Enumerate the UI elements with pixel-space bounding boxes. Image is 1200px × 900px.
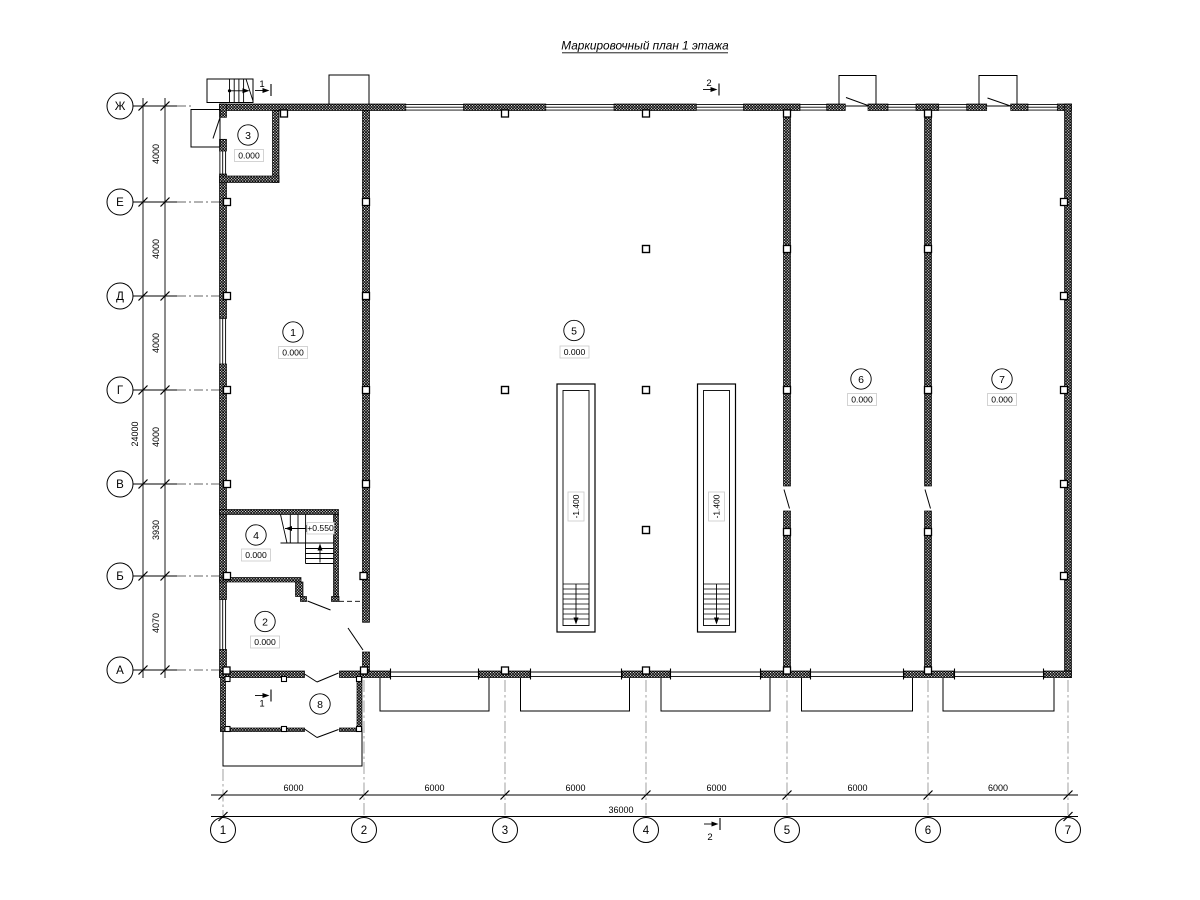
svg-text:4: 4	[253, 530, 259, 542]
svg-text:Е: Е	[116, 197, 124, 209]
svg-text:4000: 4000	[151, 144, 161, 164]
svg-text:6: 6	[858, 374, 864, 386]
svg-text:1: 1	[290, 327, 296, 339]
svg-text:6000: 6000	[988, 783, 1008, 793]
svg-text:4070: 4070	[151, 613, 161, 633]
svg-text:6000: 6000	[424, 783, 444, 793]
svg-text:3: 3	[245, 130, 251, 142]
svg-text:8: 8	[317, 699, 323, 711]
svg-text:6000: 6000	[847, 783, 867, 793]
svg-text:6: 6	[925, 825, 931, 837]
svg-text:Маркировочный план 1 этажа: Маркировочный план 1 этажа	[561, 39, 729, 53]
svg-text:Б: Б	[116, 571, 124, 583]
svg-text:2: 2	[361, 825, 367, 837]
svg-text:0.000: 0.000	[245, 550, 267, 560]
svg-text:36000: 36000	[608, 805, 633, 815]
svg-text:1: 1	[220, 825, 226, 837]
svg-text:4: 4	[643, 825, 650, 837]
svg-text:0.000: 0.000	[991, 395, 1013, 405]
svg-text:А: А	[116, 665, 124, 677]
svg-text:4000: 4000	[151, 333, 161, 353]
svg-text:1: 1	[259, 79, 264, 90]
svg-text:0.000: 0.000	[238, 151, 260, 161]
svg-text:7: 7	[1065, 825, 1071, 837]
svg-text:+0.550: +0.550	[307, 523, 334, 533]
svg-text:Ж: Ж	[115, 101, 126, 113]
svg-text:Д: Д	[116, 291, 124, 303]
svg-text:4000: 4000	[151, 427, 161, 447]
svg-text:6000: 6000	[565, 783, 585, 793]
svg-text:7: 7	[999, 374, 1005, 386]
svg-text:5: 5	[571, 325, 577, 337]
svg-text:Г: Г	[117, 385, 124, 397]
svg-text:-1.400: -1.400	[712, 494, 722, 518]
svg-text:24000: 24000	[130, 421, 140, 446]
svg-text:В: В	[116, 479, 124, 491]
svg-text:2: 2	[262, 616, 268, 628]
svg-text:0.000: 0.000	[282, 348, 304, 358]
svg-text:0.000: 0.000	[254, 637, 276, 647]
svg-text:2: 2	[707, 832, 712, 843]
svg-text:1: 1	[259, 699, 264, 710]
svg-text:3: 3	[502, 825, 508, 837]
svg-text:0.000: 0.000	[564, 347, 586, 357]
svg-text:4000: 4000	[151, 239, 161, 259]
svg-text:6000: 6000	[283, 783, 303, 793]
svg-text:6000: 6000	[706, 783, 726, 793]
svg-text:3930: 3930	[151, 520, 161, 540]
svg-text:5: 5	[784, 825, 790, 837]
svg-text:-1.400: -1.400	[571, 494, 581, 518]
svg-text:0.000: 0.000	[851, 395, 873, 405]
